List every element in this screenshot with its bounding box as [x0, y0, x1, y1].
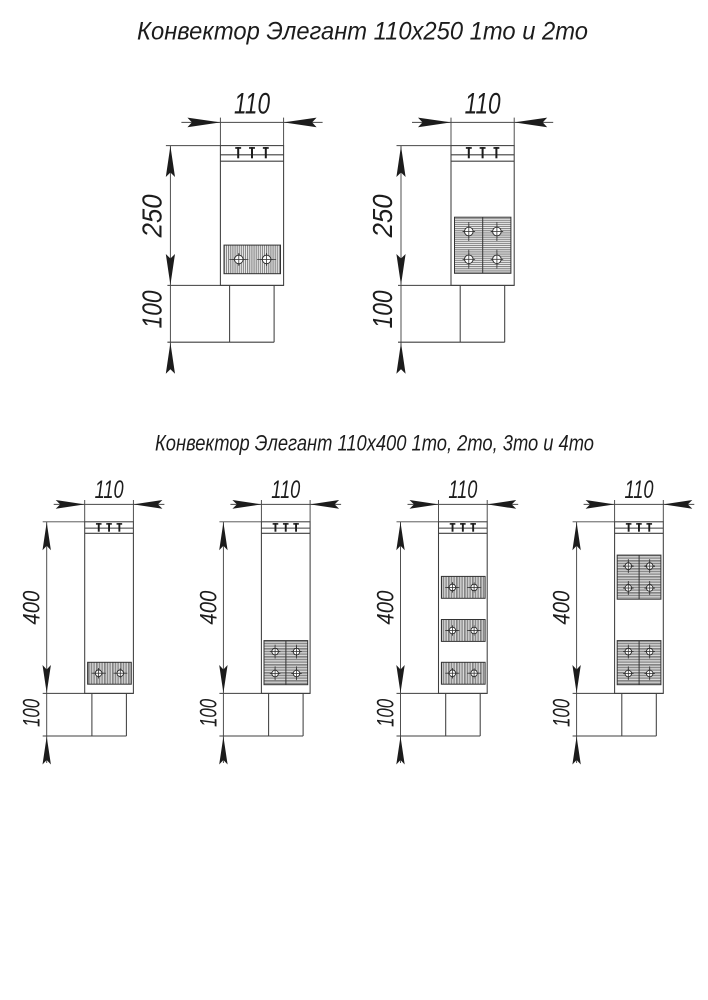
- svg-text:Конвектор Элегант 110х400 1то,: Конвектор Элегант 110х400 1то, 2то, 3то …: [155, 431, 594, 456]
- svg-text:110: 110: [625, 476, 654, 504]
- svg-text:110: 110: [95, 476, 124, 504]
- svg-text:100: 100: [136, 290, 167, 328]
- svg-text:100: 100: [549, 698, 576, 726]
- svg-text:250: 250: [136, 194, 167, 238]
- svg-text:110: 110: [465, 88, 501, 121]
- svg-text:400: 400: [373, 590, 400, 625]
- svg-text:250: 250: [367, 194, 398, 238]
- svg-text:Конвектор Элегант 110х250 1то: Конвектор Элегант 110х250 1то и 2то: [137, 18, 588, 46]
- svg-text:110: 110: [448, 476, 477, 504]
- svg-text:100: 100: [367, 290, 398, 328]
- svg-text:100: 100: [373, 698, 400, 726]
- svg-text:100: 100: [195, 698, 222, 726]
- svg-text:400: 400: [19, 590, 46, 625]
- svg-text:400: 400: [195, 590, 222, 625]
- svg-text:110: 110: [234, 88, 270, 121]
- svg-text:100: 100: [19, 698, 46, 726]
- svg-text:110: 110: [271, 476, 300, 504]
- svg-text:400: 400: [549, 590, 576, 625]
